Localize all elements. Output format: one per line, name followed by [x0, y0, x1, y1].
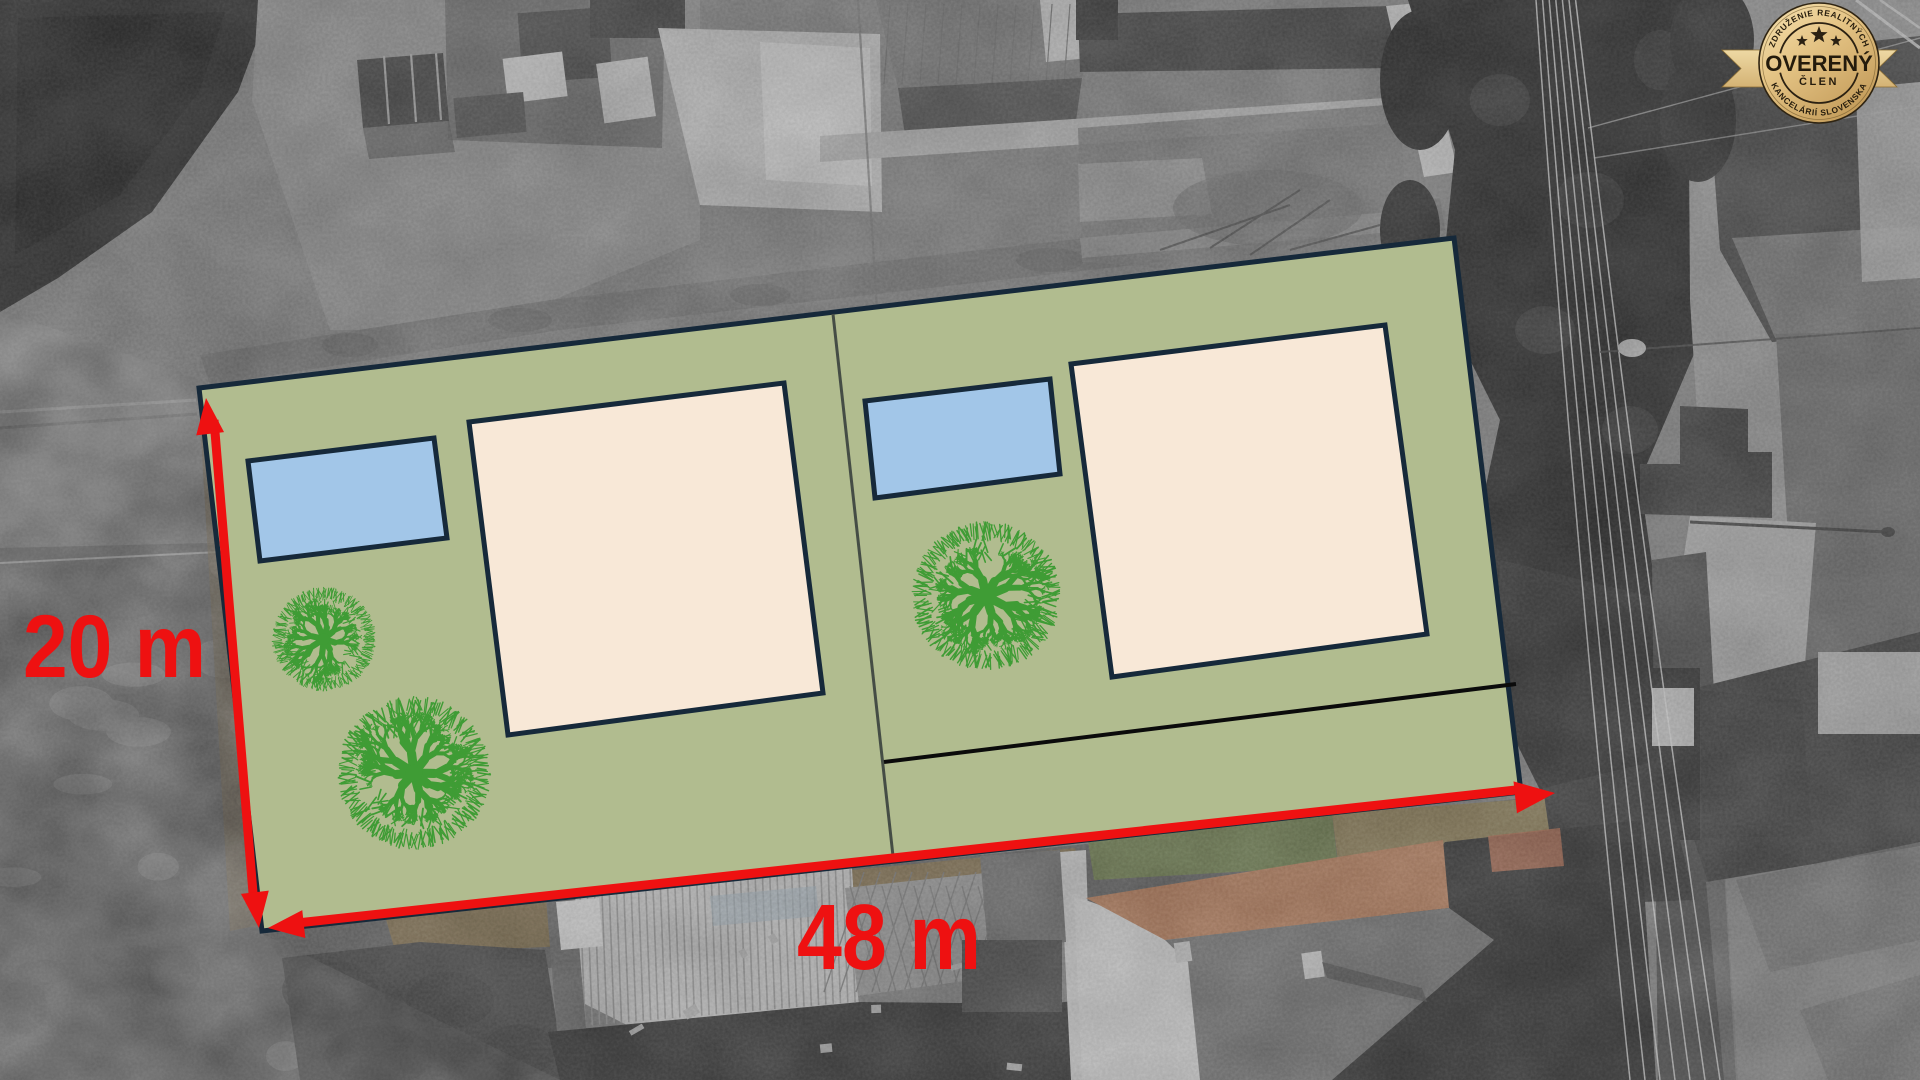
svg-text:20 m: 20 m: [23, 596, 206, 696]
svg-text:ČLEN: ČLEN: [1799, 75, 1839, 88]
svg-text:OVERENÝ: OVERENÝ: [1765, 51, 1873, 76]
svg-text:48 m: 48 m: [797, 885, 981, 989]
